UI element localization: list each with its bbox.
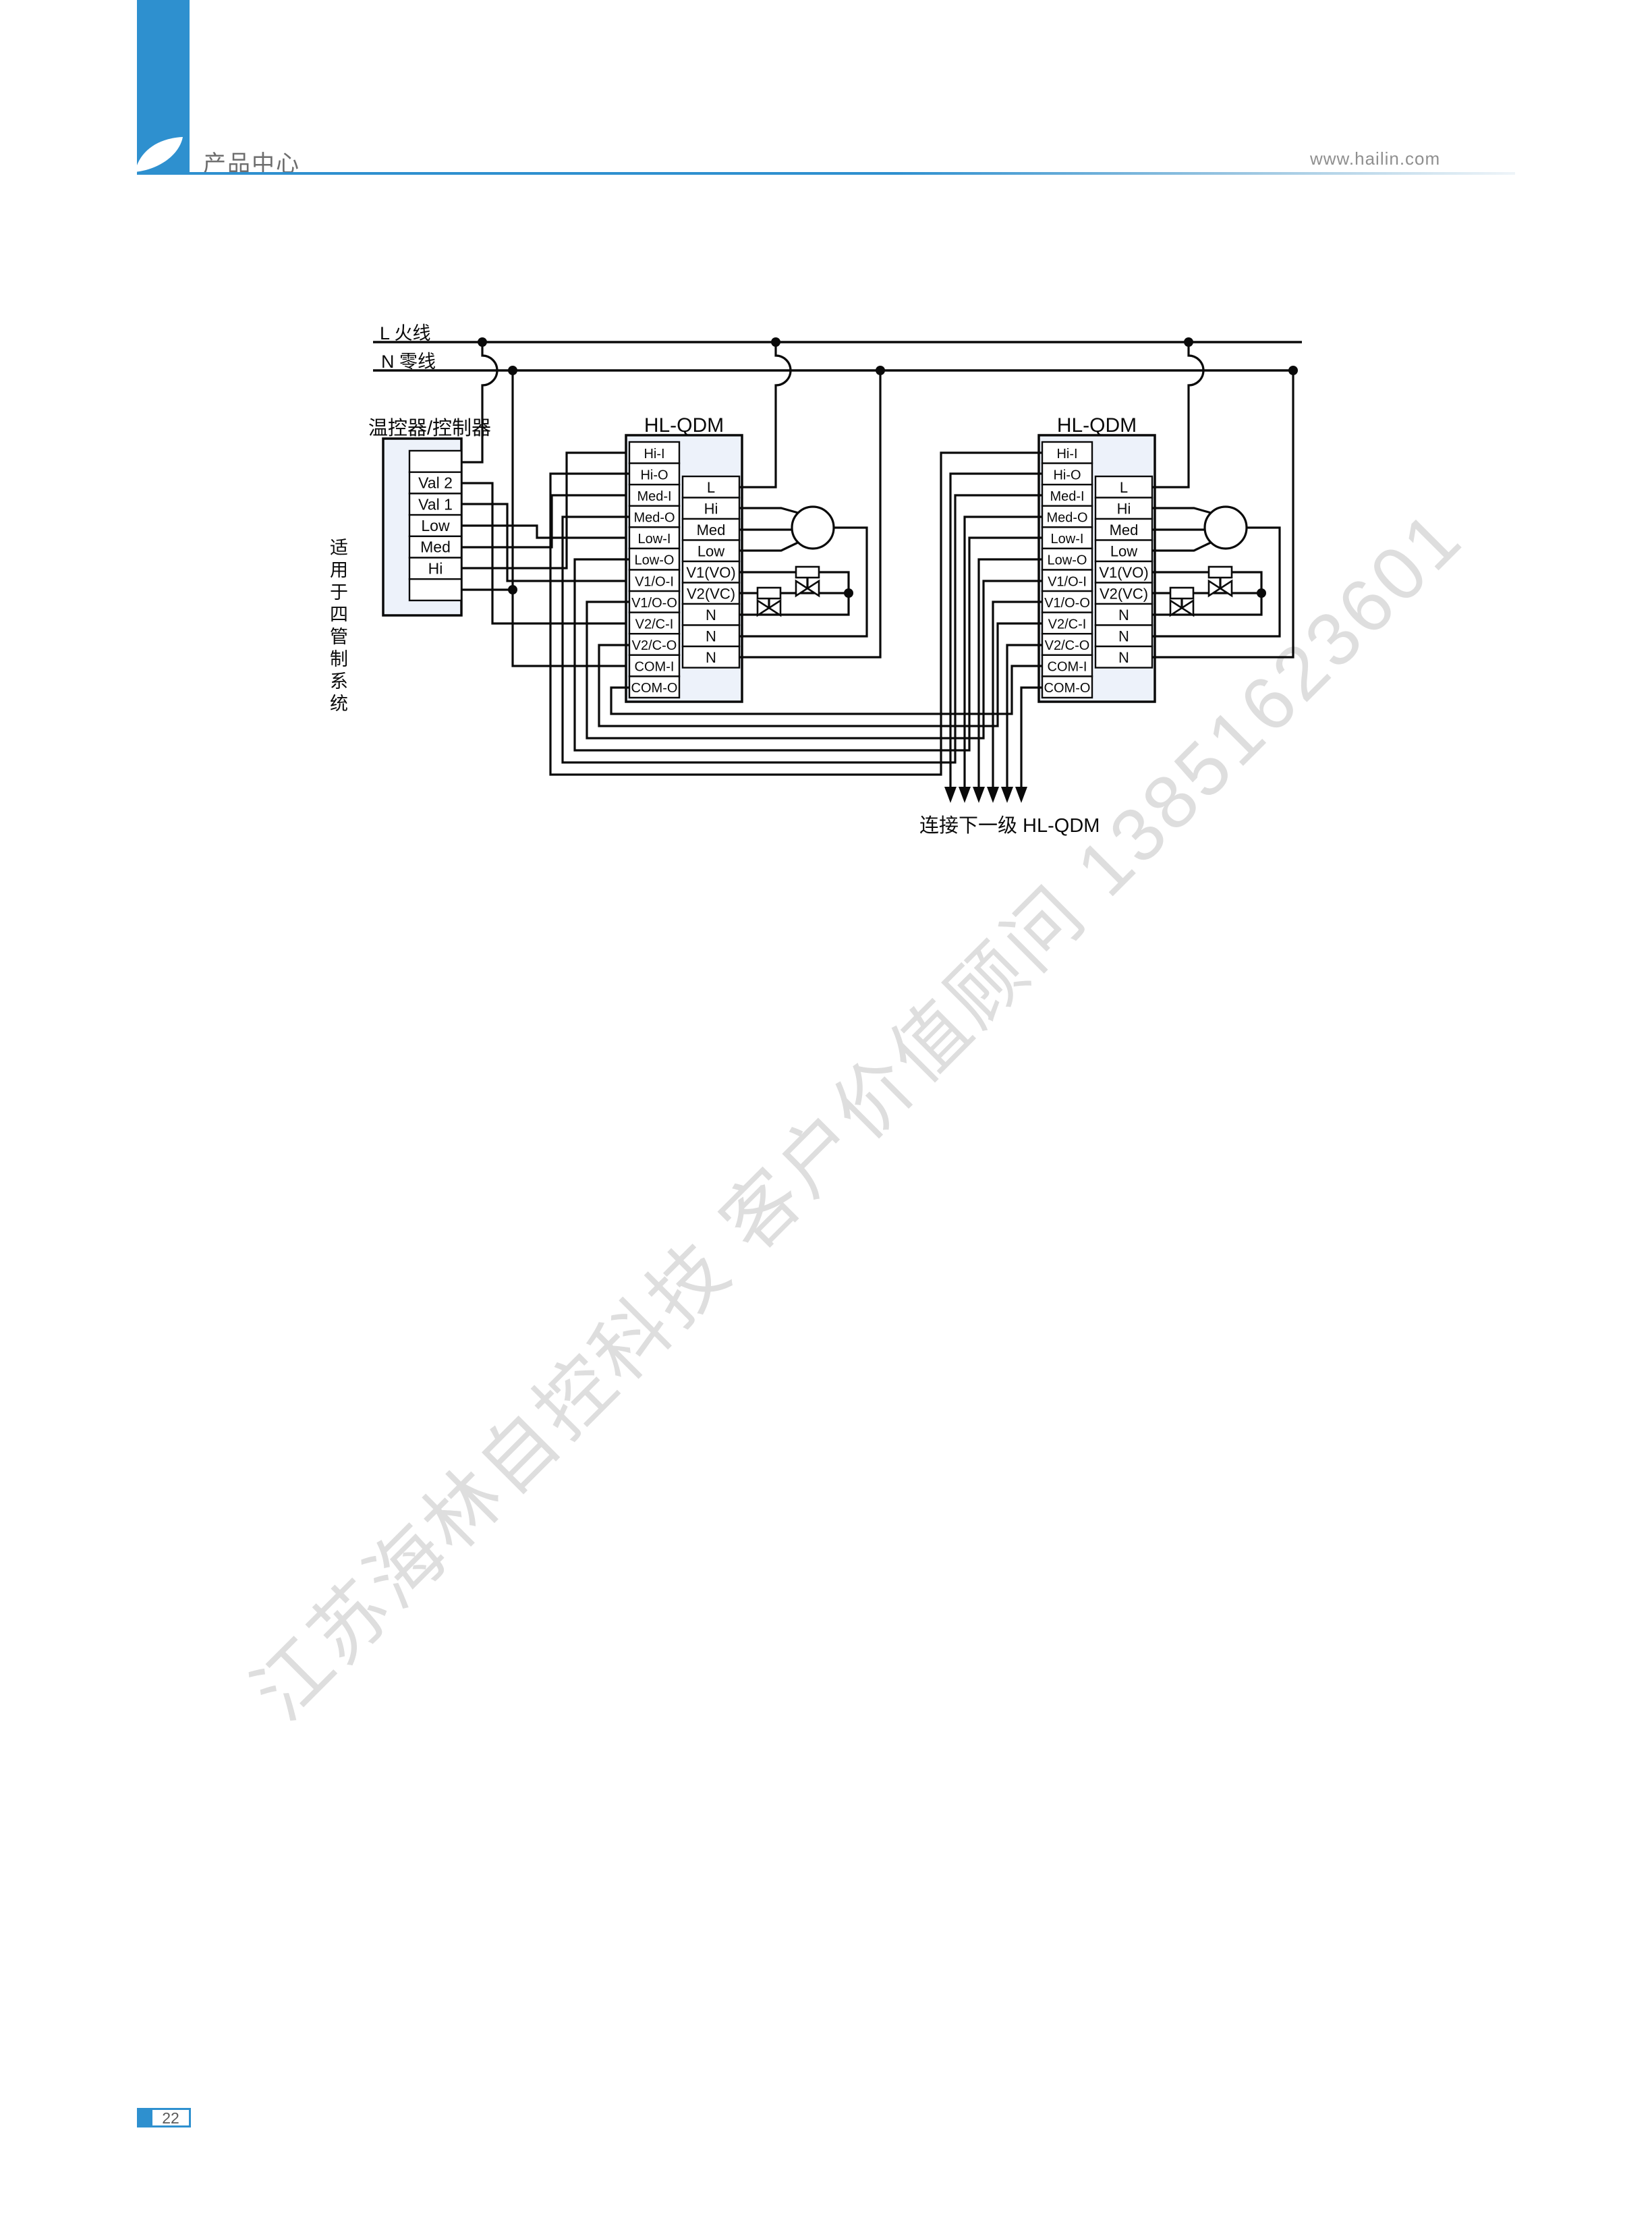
brand-block — [137, 0, 190, 174]
terminal-label: L — [707, 479, 715, 496]
terminal-label: Hi — [428, 559, 443, 577]
valve-actuator — [796, 567, 819, 578]
wire — [461, 504, 629, 581]
terminal-label: Hi-O — [640, 468, 668, 482]
terminal-label: N — [1118, 628, 1129, 644]
arrow-head — [1015, 787, 1027, 803]
valve-actuator — [758, 588, 780, 599]
terminal-label: Low — [1110, 542, 1137, 559]
terminal-label: N — [1118, 649, 1129, 666]
terminal-label: Med-I — [637, 489, 671, 504]
terminal-label: Hi — [704, 500, 718, 517]
module-title: HL-QDM — [644, 414, 724, 437]
terminal-label: Hi-I — [644, 447, 664, 462]
terminal-label: V1(VO) — [1099, 564, 1148, 581]
terminal-label: Val 2 — [418, 474, 453, 492]
terminal-label: V1/O-I — [635, 574, 674, 589]
side-note-vertical: 适用于四管制系统 — [324, 538, 351, 716]
junction-dot — [508, 366, 517, 375]
terminal-label: Low-I — [1051, 532, 1084, 547]
wiring-diagram: Val 2Val 1LowMedHiHL-QDMHi-IHi-OMed-IMed… — [0, 0, 1652, 2226]
terminal-label: Low — [697, 542, 724, 559]
terminal-label: COM-I — [1048, 660, 1087, 675]
terminal-label: Med-I — [1050, 489, 1084, 504]
website-url: www.hailin.com — [1310, 148, 1440, 169]
wire — [1152, 342, 1203, 487]
terminal-label: Hi — [1117, 500, 1131, 517]
wire — [979, 559, 1042, 789]
terminal-label: COM-O — [1044, 681, 1091, 696]
arrow-head — [973, 787, 985, 803]
terminal-label: Med-O — [1046, 511, 1087, 526]
terminal-label: V1/O-O — [631, 596, 677, 611]
arrow-head — [959, 787, 971, 803]
terminal-label: Low-O — [1048, 553, 1087, 568]
terminal-label: Low-I — [638, 532, 671, 547]
terminal-label: V2/C-O — [1045, 638, 1090, 653]
wire — [461, 342, 497, 462]
next-level-label: 连接下一级 HL-QDM — [919, 810, 1100, 838]
module-title: HL-QDM — [1057, 414, 1137, 437]
controller-cell — [409, 451, 461, 472]
terminal-label: L — [1120, 479, 1128, 496]
fan-motor — [792, 507, 834, 549]
terminal-label: V2(VC) — [1100, 585, 1148, 602]
terminal-label: N — [706, 607, 716, 623]
terminal-label: Low-O — [635, 553, 675, 568]
terminal-label: V1/O-I — [1048, 574, 1087, 589]
bus-label-neutral: N 零线 — [381, 347, 436, 373]
valve-actuator — [1209, 567, 1232, 578]
terminal-label: V1(VO) — [686, 564, 735, 581]
terminal-label: COM-I — [635, 660, 675, 675]
wire — [461, 526, 629, 538]
terminal-label: V2/C-I — [1048, 617, 1087, 632]
terminal-label: Low — [421, 517, 450, 534]
junction-dot — [844, 588, 853, 598]
wire — [739, 542, 798, 551]
wire — [993, 602, 1042, 789]
junction-dot — [771, 337, 780, 347]
junction-dot — [1184, 337, 1193, 347]
controller-title: 温控器/控制器 — [368, 412, 491, 441]
junction-dot — [508, 585, 517, 594]
controller-cell — [409, 579, 461, 601]
junction-dot — [1288, 366, 1298, 375]
junction-dot — [478, 337, 487, 347]
header-rule — [137, 172, 1515, 175]
page: 产品中心 www.hailin.com 江苏海林自控科技 客户价值顾问 1385… — [0, 0, 1652, 2226]
arrow-head — [1001, 787, 1013, 803]
page-badge-accent — [139, 2110, 152, 2125]
terminal-label: Med — [420, 538, 451, 556]
terminal-label: Hi-O — [1053, 468, 1081, 482]
wire — [513, 370, 629, 666]
junction-dot — [876, 366, 885, 375]
terminal-label: V1/O-O — [1044, 596, 1090, 611]
junction-dot — [1257, 588, 1266, 598]
terminal-label: V2/C-I — [635, 617, 674, 632]
wire — [739, 342, 791, 487]
arrow-head — [987, 787, 999, 803]
valve-actuator — [1170, 588, 1193, 599]
wire — [1152, 508, 1211, 513]
terminal-label: V2/C-O — [632, 638, 677, 653]
wire — [739, 508, 798, 513]
terminal-label: COM-O — [631, 681, 678, 696]
valve-body — [758, 601, 769, 615]
page-number-badge: 22 — [137, 2108, 191, 2127]
terminal-label: Med-O — [633, 511, 675, 526]
bus-label-live: L 火线 — [380, 318, 431, 345]
terminal-label: Med — [697, 522, 726, 538]
terminal-label: V2(VC) — [687, 585, 735, 602]
page-number: 22 — [152, 2110, 189, 2125]
fan-motor — [1205, 507, 1247, 549]
terminal-label: Med — [1110, 522, 1139, 538]
wire — [1152, 542, 1211, 551]
valve-body — [1170, 601, 1182, 615]
valve-body — [769, 601, 780, 615]
wire — [461, 453, 629, 568]
wire — [965, 517, 1042, 789]
terminal-label: N — [1118, 607, 1129, 623]
leaf-logo-icon — [133, 132, 188, 174]
valve-body — [1182, 601, 1193, 615]
arrow-head — [944, 787, 957, 803]
terminal-label: N — [706, 649, 716, 666]
terminal-label: Val 1 — [418, 495, 453, 513]
terminal-label: N — [706, 628, 716, 644]
terminal-label: Hi-I — [1056, 447, 1077, 462]
